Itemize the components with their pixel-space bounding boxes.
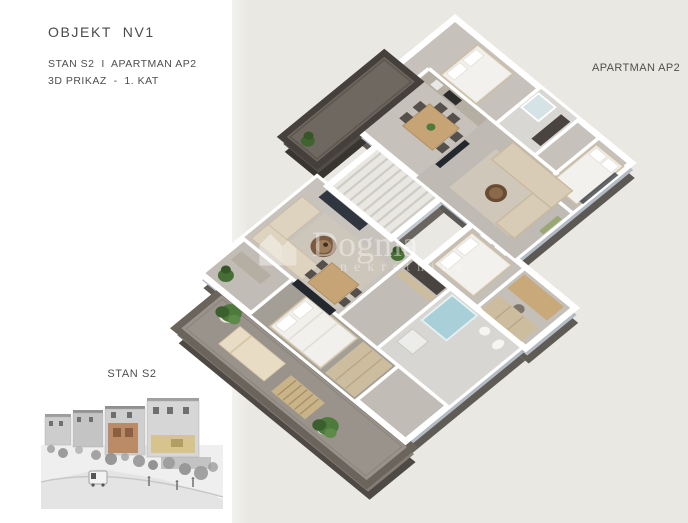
stan-s2-thumbnail: STAN S2 [41,368,223,514]
highlight-orange-facade [108,423,138,453]
presentation-slide: Dogma nekretnine OBJEKT NV1 STAN S2 I AP… [0,0,688,523]
subtitle-view: 3D PRIKAZ - 1. KAT [48,73,197,90]
street-view-render [41,387,223,509]
header-block: OBJEKT NV1 STAN S2 I APARTMAN AP2 3D PRI… [48,24,197,90]
label-apartman-ap2: APARTMAN AP2 [592,62,680,74]
label-stan-s2: STAN S2 [41,368,223,380]
van [89,471,107,487]
page-title: OBJEKT NV1 [48,24,197,40]
subtitle-units: STAN S2 I APARTMAN AP2 [48,56,197,73]
